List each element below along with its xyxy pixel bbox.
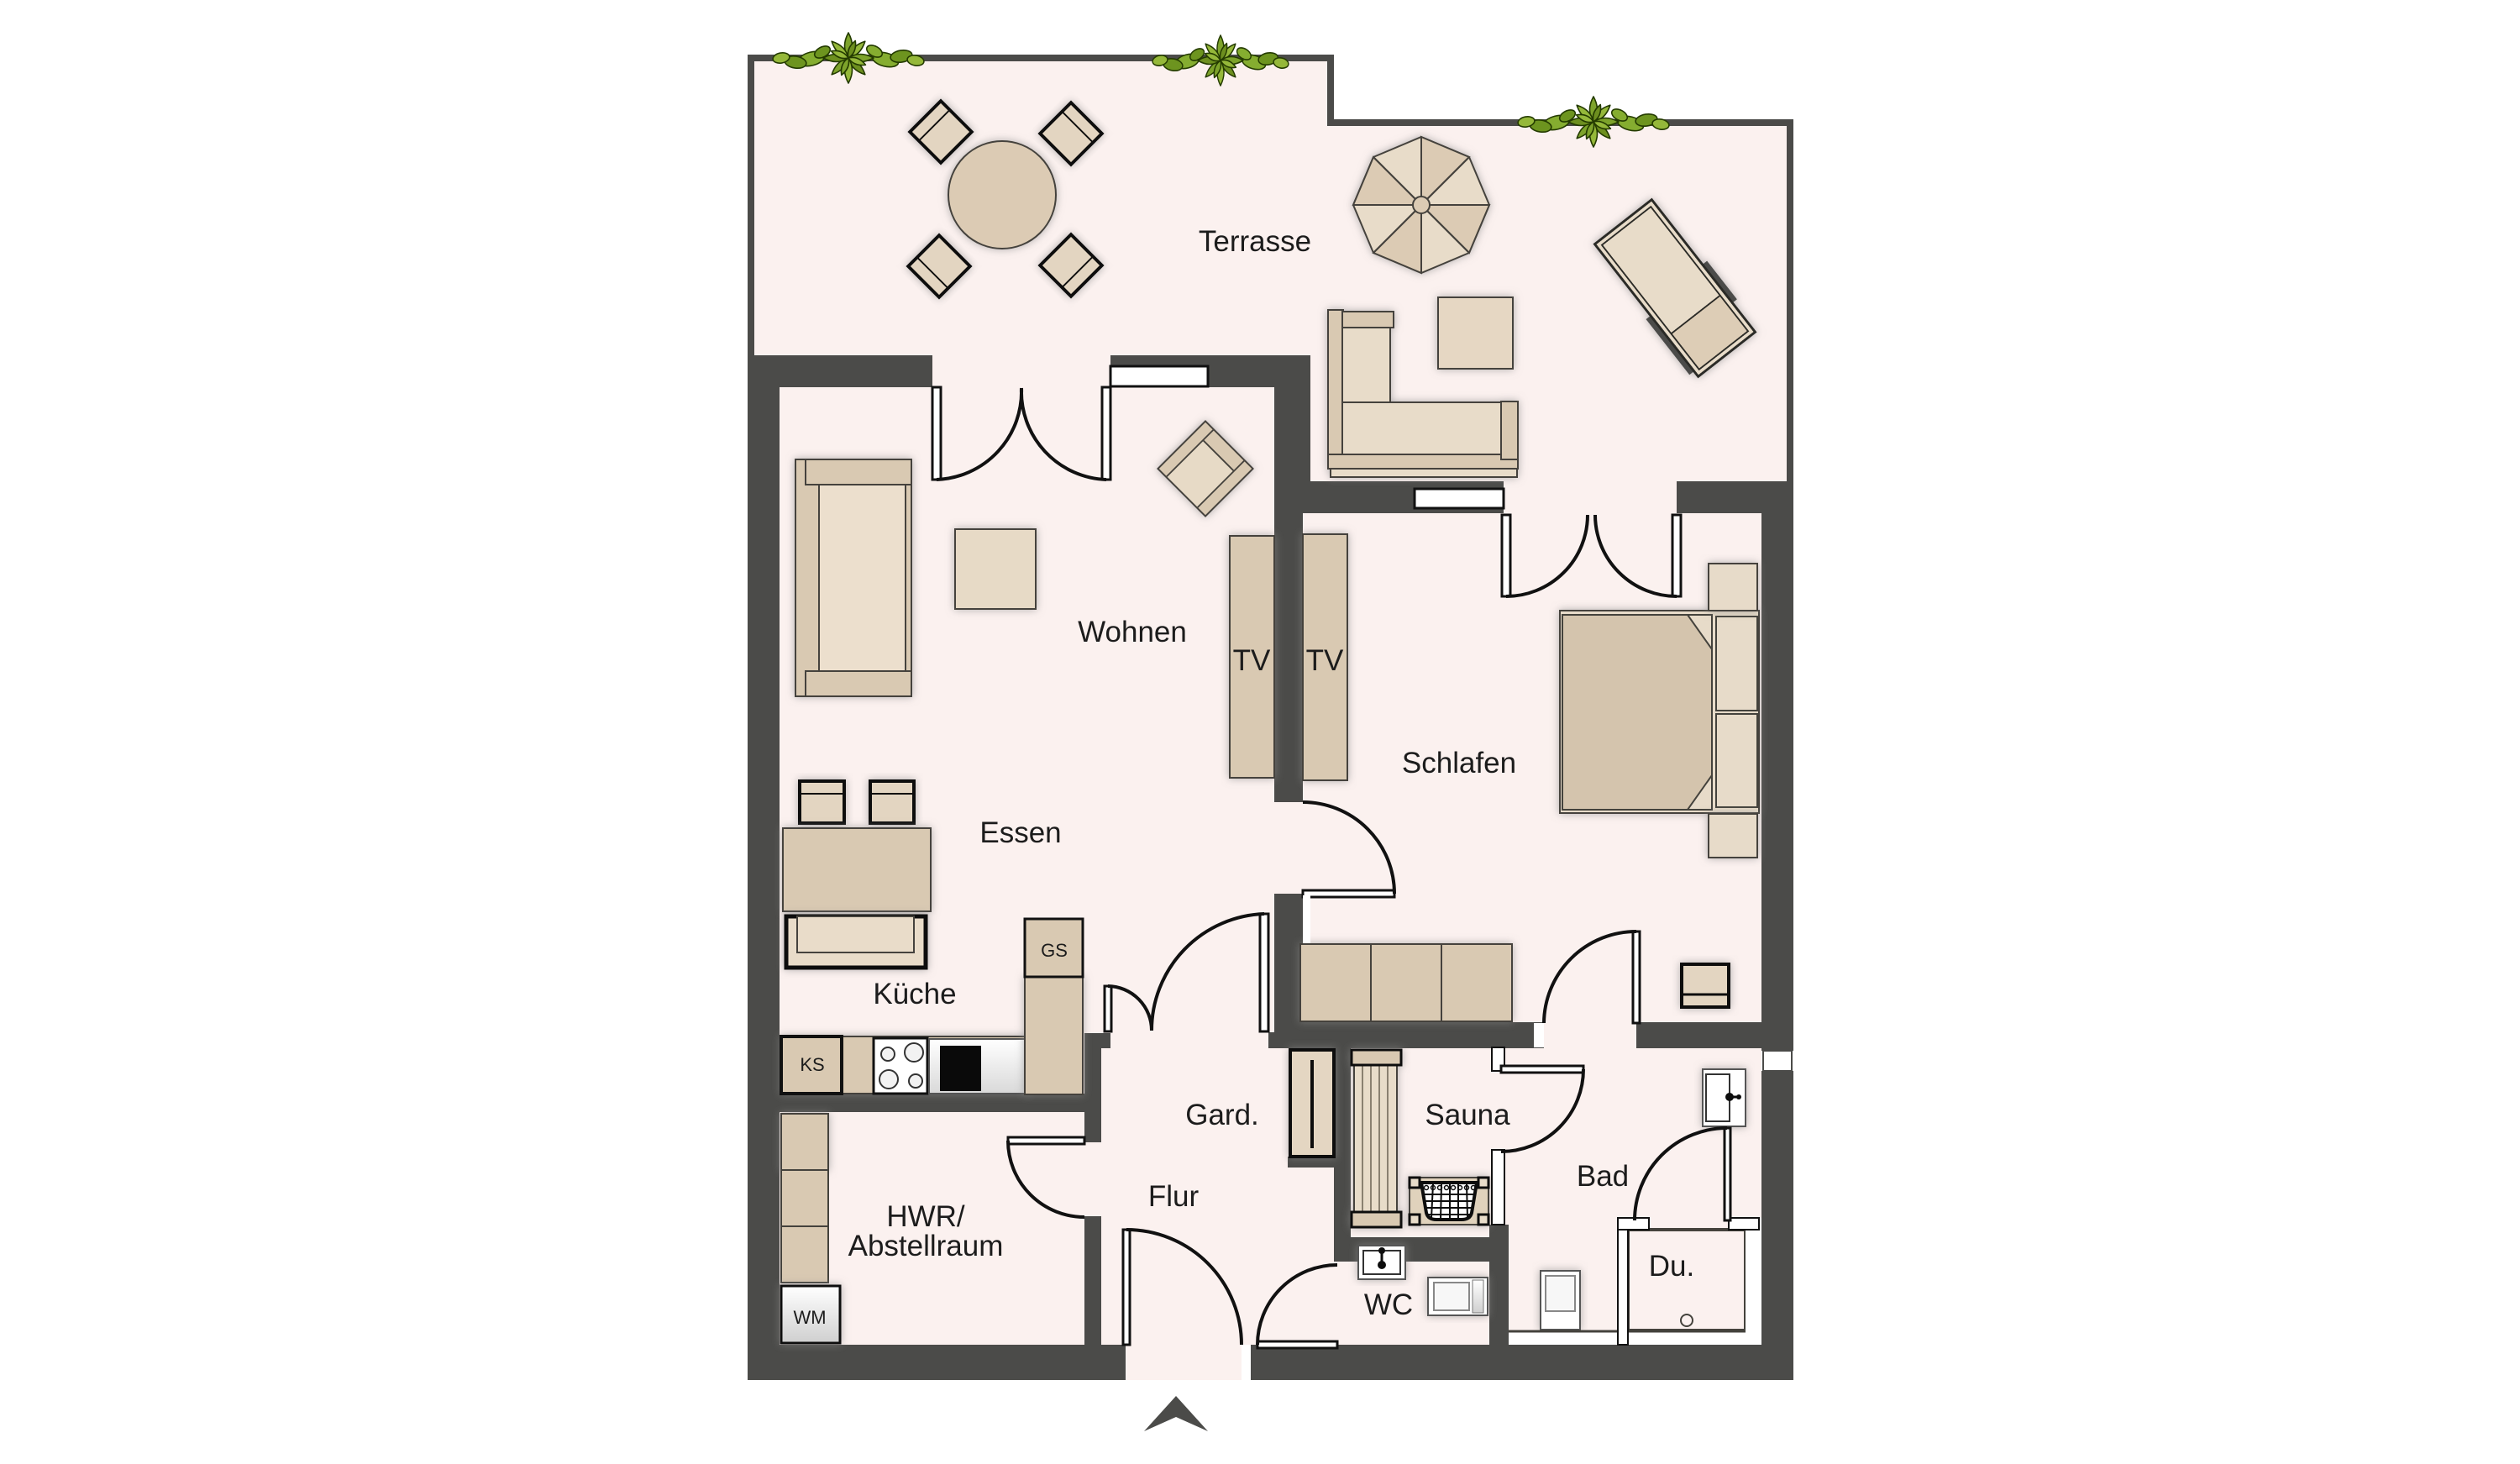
svg-text:WM: WM — [793, 1307, 826, 1328]
svg-text:KS: KS — [800, 1054, 824, 1075]
svg-text:GS: GS — [1041, 940, 1068, 961]
svg-text:Gard.: Gard. — [1185, 1099, 1259, 1131]
svg-text:Sauna: Sauna — [1425, 1099, 1510, 1131]
svg-text:Abstellraum: Abstellraum — [848, 1230, 1004, 1262]
svg-text:WC: WC — [1364, 1288, 1413, 1321]
svg-text:TV: TV — [1306, 644, 1344, 677]
svg-text:Essen: Essen — [979, 816, 1061, 849]
svg-text:Terrasse: Terrasse — [1199, 225, 1311, 258]
svg-text:Küche: Küche — [873, 978, 956, 1010]
svg-text:Du.: Du. — [1649, 1250, 1694, 1283]
svg-text:Schlafen: Schlafen — [1402, 747, 1516, 779]
svg-text:HWR/: HWR/ — [886, 1200, 965, 1233]
svg-text:TV: TV — [1233, 644, 1271, 677]
svg-text:Wohnen: Wohnen — [1078, 616, 1187, 648]
svg-text:Bad: Bad — [1577, 1160, 1629, 1193]
svg-text:Flur: Flur — [1148, 1180, 1200, 1213]
